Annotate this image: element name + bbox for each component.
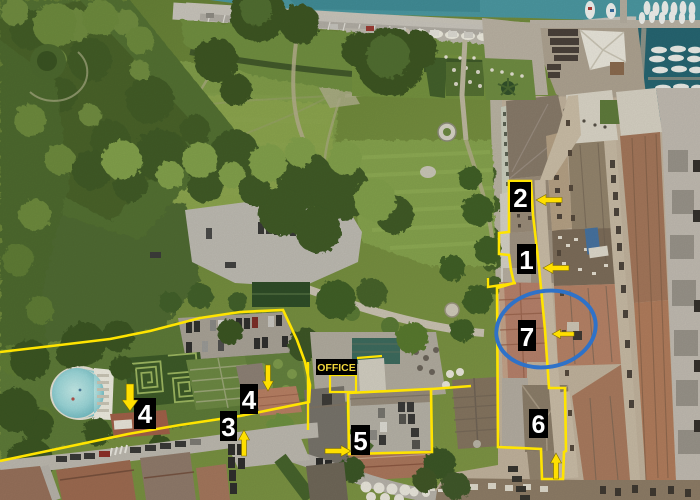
svg-text:4: 4	[242, 385, 257, 415]
svg-text:6: 6	[532, 411, 546, 439]
svg-text:3: 3	[221, 412, 235, 442]
svg-text:1: 1	[519, 245, 533, 275]
svg-text:2: 2	[513, 183, 527, 213]
svg-text:OFFICE: OFFICE	[317, 362, 356, 374]
svg-text:4: 4	[138, 399, 153, 429]
svg-text:7: 7	[520, 322, 534, 352]
svg-text:5: 5	[353, 426, 367, 456]
